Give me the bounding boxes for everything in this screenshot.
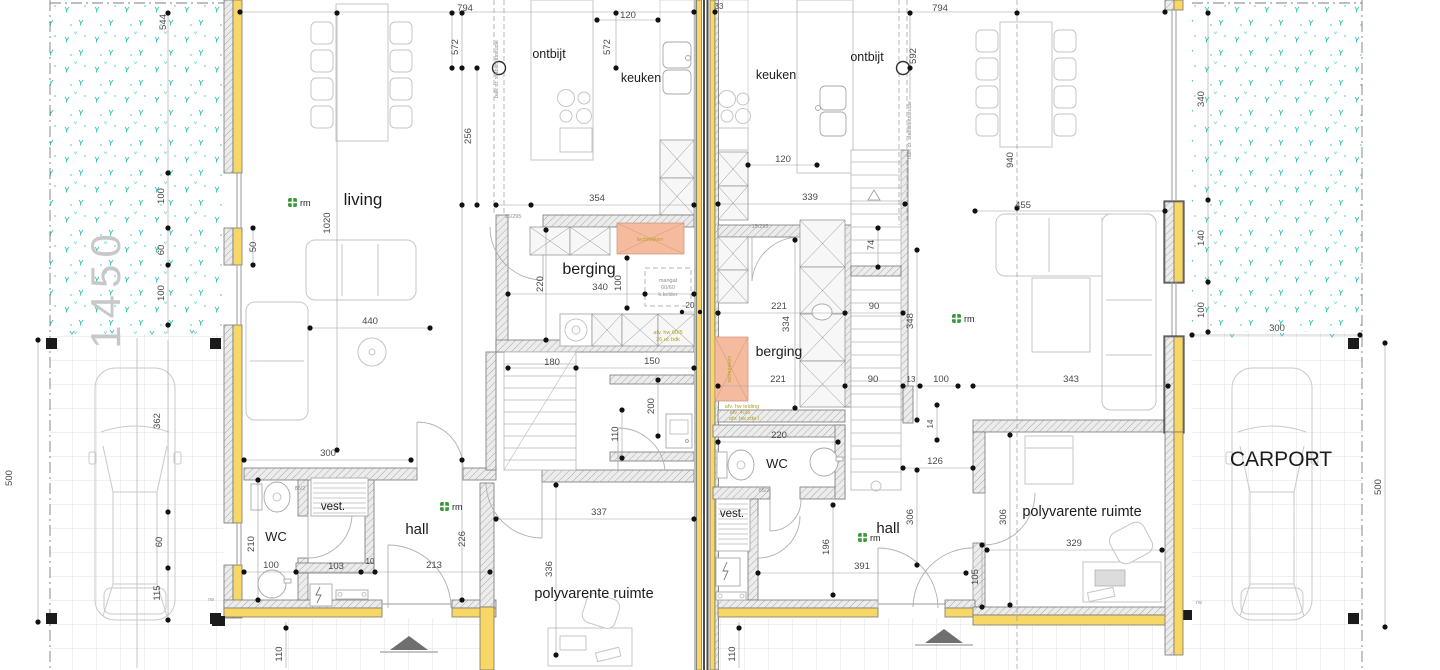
room-label-living-left: living — [344, 190, 383, 209]
dim-label: 126 — [927, 456, 943, 467]
dim-label: 500 — [4, 470, 15, 486]
dim-label: 794 — [932, 3, 948, 14]
dim-label: 592 — [908, 48, 919, 64]
site-width-label: 1450 — [82, 227, 129, 348]
dim-label: 20 — [686, 301, 695, 310]
dim-label: 334 — [781, 316, 792, 332]
manhole-note-2: 60/60 — [661, 285, 675, 291]
dim-label: 300 — [1269, 323, 1285, 334]
room-label-ontbijt-left: ontbijt — [532, 47, 566, 61]
dim-label: 120 — [775, 154, 791, 165]
room-label-vest-left: vest. — [321, 501, 345, 513]
room-label-keuken-left: keuken — [621, 71, 661, 85]
smoke-detector-label: rm — [870, 533, 881, 543]
dim-label: 50 — [248, 242, 259, 253]
dim-label: 100 — [156, 188, 167, 204]
floorplan-page: technieken mangat 60/60 k.kelder afv. hw… — [0, 0, 1440, 670]
stairs-left — [504, 352, 576, 470]
beam-note-left: balk dr. stabiliteitsstudie — [494, 40, 500, 98]
floorplan-svg: technieken mangat 60/60 k.kelder afv. hw… — [0, 0, 1440, 670]
smoke-detector-icon: rm — [440, 502, 463, 512]
dim-label: 90 — [869, 301, 880, 312]
dim-label: 306 — [905, 509, 916, 525]
sill-note-right: 85/2 — [759, 488, 770, 494]
technical-zone-right: technieken — [715, 337, 748, 401]
dim-label: 572 — [450, 39, 461, 55]
porch-left-paving — [224, 617, 480, 670]
dim-label: 256 — [463, 128, 474, 144]
sill-note-left: 85/2 — [295, 486, 306, 492]
dim-label: 340 — [1196, 91, 1207, 107]
dim-label: 105 — [970, 569, 981, 585]
dim-label: 1020 — [322, 212, 333, 233]
dim-label: 300 — [320, 448, 336, 459]
dim-label: 14 — [926, 419, 935, 428]
room-label-keuken-right: keuken — [756, 68, 796, 82]
dim-label: 100 — [263, 560, 279, 571]
dim-label: 544 — [158, 14, 169, 30]
dim-label: 150 — [644, 356, 660, 367]
dim-label: 336 — [544, 561, 555, 577]
smoke-detector-icon: rm — [858, 533, 881, 543]
dim-label: 354 — [589, 193, 605, 204]
tech-label-left: technieken — [637, 237, 664, 243]
dim-label: 794 — [457, 3, 473, 14]
rw-note-right: rw — [1196, 600, 1202, 606]
dim-label: 343 — [1063, 374, 1079, 385]
dim-label: 455 — [1015, 200, 1031, 211]
garden-left — [50, 4, 224, 334]
beam-note-right: balk dr. stabiliteitsstudie — [907, 101, 913, 159]
dim-label: 100 — [156, 285, 167, 301]
room-label-wc-right: WC — [766, 456, 788, 471]
dim-label: 340 — [592, 282, 608, 293]
tech-label-right: technieken — [727, 356, 733, 383]
room-label-berging-left: berging — [562, 261, 615, 278]
drain-note-l2: 26 uc bdk — [656, 337, 680, 343]
rw-note-left: rw — [208, 597, 214, 603]
dim-label: 33 — [715, 2, 724, 11]
dim-label: 103 — [328, 561, 344, 572]
dim-label: 440 — [362, 316, 378, 327]
room-label-hall-left: hall — [405, 521, 428, 538]
dim-label: 940 — [1005, 152, 1016, 168]
dim-label: 306 — [998, 509, 1009, 525]
vestiaire-right — [716, 499, 750, 551]
drain-note-l1: afv. hw 60/5 — [653, 330, 682, 336]
dim-label: 220 — [771, 430, 787, 441]
dim-label: 572 — [602, 39, 613, 55]
room-label-vest-right: vest. — [720, 508, 744, 520]
dim-label: 140 — [1196, 230, 1207, 246]
dim-label: 362 — [152, 413, 163, 429]
toilet-left — [251, 482, 290, 512]
dim-label: 13 — [907, 375, 916, 384]
dim-label: 74 — [866, 240, 877, 251]
dim-label: 337 — [591, 507, 607, 518]
dim-label: 220 — [535, 276, 546, 292]
dim-label: 110 — [610, 426, 621, 441]
dim-label: 60 — [156, 245, 167, 256]
dim-label: 339 — [802, 192, 818, 203]
dim-label: 200 — [646, 398, 657, 414]
smoke-detector-label: rm — [964, 314, 975, 324]
manhole-note-3: k.kelder — [658, 292, 677, 298]
dim-label: 115 — [152, 585, 163, 600]
garden-right — [1192, 4, 1362, 332]
smoke-detector-label: rm — [452, 502, 463, 512]
manhole-note-1: mangat — [659, 278, 678, 284]
dim-label: 329 — [1066, 538, 1082, 549]
dim-label: 180 — [544, 357, 560, 368]
drain-note-r3: afv. hw cde.l — [729, 416, 759, 422]
dim-label: 90 — [868, 374, 879, 385]
room-label-poly-left: polyvarente ruimte — [534, 586, 653, 602]
smoke-detector-icon: rm — [288, 198, 311, 208]
lintel-note-right: 15/295 — [752, 224, 769, 230]
dim-label: 221 — [771, 301, 787, 312]
lintel-note-left: 15/295 — [505, 214, 522, 220]
porch-right-paving — [713, 617, 975, 670]
dim-label: 210 — [246, 536, 257, 552]
room-label-wc-left: WC — [265, 529, 287, 544]
dim-label: 110 — [727, 646, 738, 661]
dim-label: 391 — [854, 561, 870, 572]
dim-label: 100 — [1196, 302, 1207, 318]
dim-label: 226 — [457, 531, 468, 547]
dim-label: 110 — [274, 646, 285, 661]
paving-right-south — [975, 625, 1192, 670]
dim-label: 221 — [770, 374, 786, 385]
toilet-right — [717, 450, 754, 480]
technical-zone-left: technieken — [617, 223, 684, 254]
stairs-right — [851, 150, 901, 491]
carport-right-paving — [1192, 332, 1362, 670]
smoke-detector-label: rm — [300, 198, 311, 208]
room-label-ontbijt-right: ontbijt — [850, 50, 884, 64]
dim-label: 100 — [933, 374, 949, 385]
dim-label: 213 — [426, 560, 442, 571]
dim-label: 196 — [821, 539, 832, 555]
dim-label: 10 — [366, 557, 375, 566]
room-label-berging-right: berging — [756, 343, 803, 359]
dim-label: 348 — [905, 313, 916, 329]
smoke-detector-icon: rm — [952, 314, 975, 324]
dim-label: 500 — [1373, 479, 1384, 495]
dim-label: 60 — [154, 537, 165, 548]
carport-label: CARPORT — [1230, 448, 1332, 471]
dim-label: 120 — [620, 10, 636, 21]
room-label-poly-right: polyvarente ruimte — [1022, 504, 1141, 520]
